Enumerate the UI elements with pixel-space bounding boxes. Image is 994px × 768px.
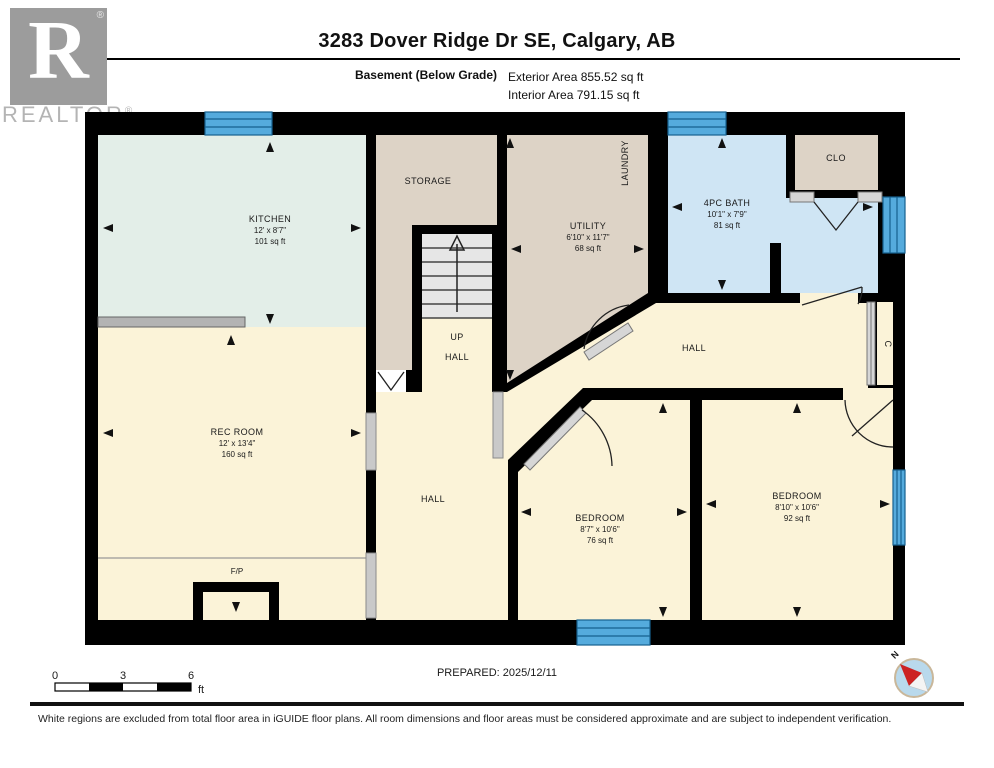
svg-text:HALL: HALL: [445, 352, 469, 362]
svg-text:REC ROOM: REC ROOM: [211, 427, 264, 437]
svg-text:8'10" x 10'6": 8'10" x 10'6": [775, 503, 819, 512]
prepared-date: PREPARED: 2025/12/11: [0, 667, 994, 679]
closet-c-label: C: [883, 341, 893, 348]
window-bedroom1-bottom: [577, 620, 650, 645]
svg-text:C: C: [883, 341, 893, 348]
laundry-label: LAUNDRY: [620, 140, 630, 186]
svg-text:160 sq ft: 160 sq ft: [222, 450, 253, 459]
hall-center-label: HALL: [421, 494, 445, 504]
svg-text:10'1" x 7'9": 10'1" x 7'9": [707, 210, 747, 219]
svg-text:LAUNDRY: LAUNDRY: [620, 140, 630, 186]
room-rec: [98, 327, 366, 620]
svg-text:101 sq ft: 101 sq ft: [255, 237, 286, 246]
window-bath-right: [883, 197, 905, 253]
svg-text:BEDROOM: BEDROOM: [575, 513, 624, 523]
hall-right-label: HALL: [682, 343, 706, 353]
svg-text:HALL: HALL: [421, 494, 445, 504]
closet-c-door: [867, 302, 875, 385]
kitchen-counter: [98, 317, 245, 327]
svg-text:CLO: CLO: [826, 153, 846, 163]
window-bath-top: [668, 112, 726, 135]
svg-text:68 sq ft: 68 sq ft: [575, 244, 602, 253]
svg-text:UTILITY: UTILITY: [570, 221, 606, 231]
svg-text:STORAGE: STORAGE: [405, 176, 452, 186]
compass-north-label: N: [889, 649, 901, 661]
svg-text:92 sq ft: 92 sq ft: [784, 514, 811, 523]
svg-text:76 sq ft: 76 sq ft: [587, 536, 614, 545]
clo-label: CLO: [826, 153, 846, 163]
storage-label: STORAGE: [405, 176, 452, 186]
floor-plan: KITCHEN 12' x 8'7" 101 sq ft STORAGE UTI…: [0, 0, 994, 768]
svg-text:8'7" x 10'6": 8'7" x 10'6": [580, 525, 620, 534]
svg-text:KITCHEN: KITCHEN: [249, 214, 291, 224]
fireplace-label: F/P: [231, 567, 243, 576]
staircase: [422, 234, 492, 392]
svg-text:BEDROOM: BEDROOM: [772, 491, 821, 501]
window-bedroom2-right: [893, 470, 905, 545]
svg-text:6'10" x 11'7": 6'10" x 11'7": [566, 233, 609, 242]
window-kitchen-top: [205, 112, 272, 135]
storage-door: [376, 370, 406, 392]
floorplan-page: { "header": { "title": "3283 Dover Ridge…: [0, 0, 994, 768]
svg-text:ft: ft: [198, 684, 204, 696]
bath-partition: [770, 243, 781, 293]
room-kitchen: [98, 135, 366, 327]
svg-text:4PC BATH: 4PC BATH: [704, 198, 751, 208]
svg-text:UP: UP: [450, 332, 463, 342]
disclaimer-text: White regions are excluded from total fl…: [38, 713, 968, 725]
footer-divider: [30, 702, 964, 706]
svg-text:12' x 13'4": 12' x 13'4": [219, 439, 256, 448]
kitchen-label: KITCHEN 12' x 8'7" 101 sq ft: [249, 214, 291, 246]
svg-text:81 sq ft: 81 sq ft: [714, 221, 741, 230]
svg-text:F/P: F/P: [231, 567, 243, 576]
svg-text:HALL: HALL: [682, 343, 706, 353]
svg-text:12' x 8'7": 12' x 8'7": [254, 226, 286, 235]
